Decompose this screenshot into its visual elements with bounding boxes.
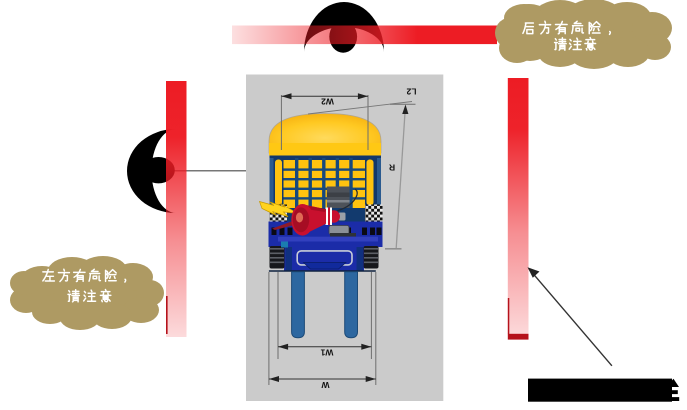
svg-text:R: R (389, 163, 395, 173)
svg-text:W: W (321, 380, 330, 390)
svg-text:W2: W2 (321, 97, 334, 107)
svg-text:W1: W1 (320, 348, 333, 358)
svg-text:L2: L2 (406, 87, 416, 97)
